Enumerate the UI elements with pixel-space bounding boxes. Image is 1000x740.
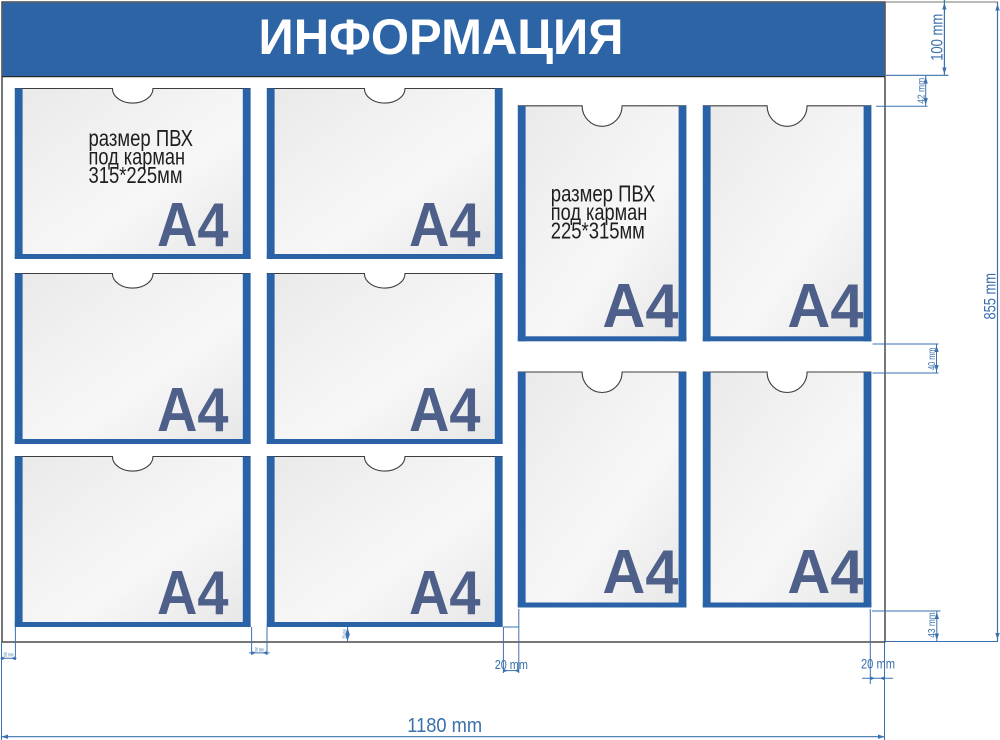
svg-text:20 mm: 20 mm (255, 647, 264, 653)
svg-text:А4: А4 (157, 191, 229, 260)
svg-text:А4: А4 (409, 559, 481, 628)
svg-text:42 mm: 42 mm (915, 78, 927, 104)
svg-text:100 mm: 100 mm (928, 14, 946, 61)
svg-text:855 mm: 855 mm (981, 273, 999, 320)
svg-text:А4: А4 (602, 272, 678, 341)
svg-text:А4: А4 (787, 272, 863, 341)
svg-text:40 mm: 40 mm (926, 348, 938, 370)
svg-text:А4: А4 (157, 559, 229, 628)
svg-text:20 mm: 20 mm (861, 657, 895, 672)
svg-text:225*315мм: 225*315мм (551, 217, 645, 243)
svg-text:А4: А4 (787, 538, 863, 607)
svg-text:А4: А4 (409, 191, 481, 260)
svg-text:А4: А4 (157, 376, 229, 445)
svg-text:20 mm: 20 mm (4, 653, 14, 659)
svg-text:1180 mm: 1180 mm (407, 714, 482, 737)
svg-text:20 mm: 20 mm (342, 629, 348, 639)
svg-text:ИНФОРМАЦИЯ: ИНФОРМАЦИЯ (259, 9, 624, 65)
svg-text:А4: А4 (602, 538, 678, 607)
svg-text:А4: А4 (409, 376, 481, 445)
svg-text:43 mm: 43 mm (926, 612, 938, 638)
svg-text:20 mm: 20 mm (495, 658, 528, 672)
svg-text:315*225мм: 315*225мм (89, 162, 183, 188)
